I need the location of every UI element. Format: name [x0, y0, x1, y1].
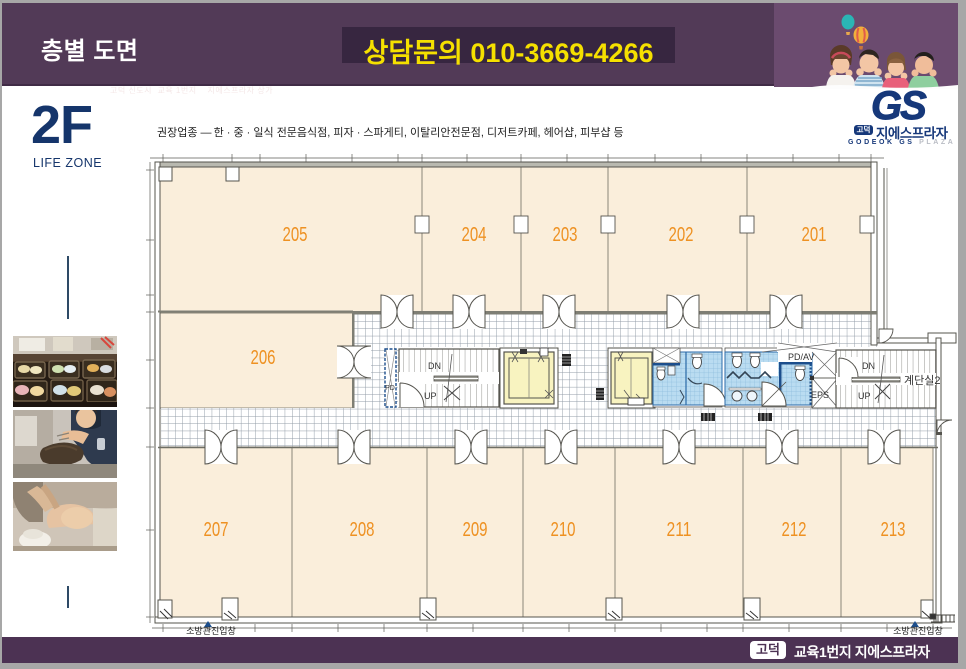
svg-text:UP: UP — [424, 391, 437, 401]
svg-text:소방관진입창: 소방관진입창 — [186, 625, 236, 636]
svg-text:208: 208 — [350, 519, 375, 541]
svg-text:소방관진입창: 소방관진입창 — [893, 625, 943, 636]
svg-text:204: 204 — [462, 224, 487, 246]
svg-text:207: 207 — [204, 519, 229, 541]
svg-text:205: 205 — [283, 224, 308, 246]
svg-text:213: 213 — [881, 519, 906, 541]
svg-text:EPS: EPS — [811, 390, 829, 400]
svg-text:PD/AV: PD/AV — [788, 352, 814, 362]
svg-text:202: 202 — [669, 224, 694, 246]
svg-text:UP: UP — [858, 391, 871, 401]
svg-text:211: 211 — [667, 519, 692, 541]
svg-text:209: 209 — [463, 519, 488, 541]
svg-text:212: 212 — [782, 519, 807, 541]
svg-text:210: 210 — [551, 519, 576, 541]
svg-text:계단실2: 계단실2 — [904, 374, 940, 387]
svg-text:DN: DN — [428, 361, 441, 371]
svg-text:203: 203 — [553, 224, 578, 246]
svg-text:PD: PD — [385, 385, 395, 392]
svg-text:201: 201 — [802, 224, 827, 246]
svg-text:DN: DN — [862, 361, 875, 371]
svg-text:206: 206 — [251, 347, 276, 369]
